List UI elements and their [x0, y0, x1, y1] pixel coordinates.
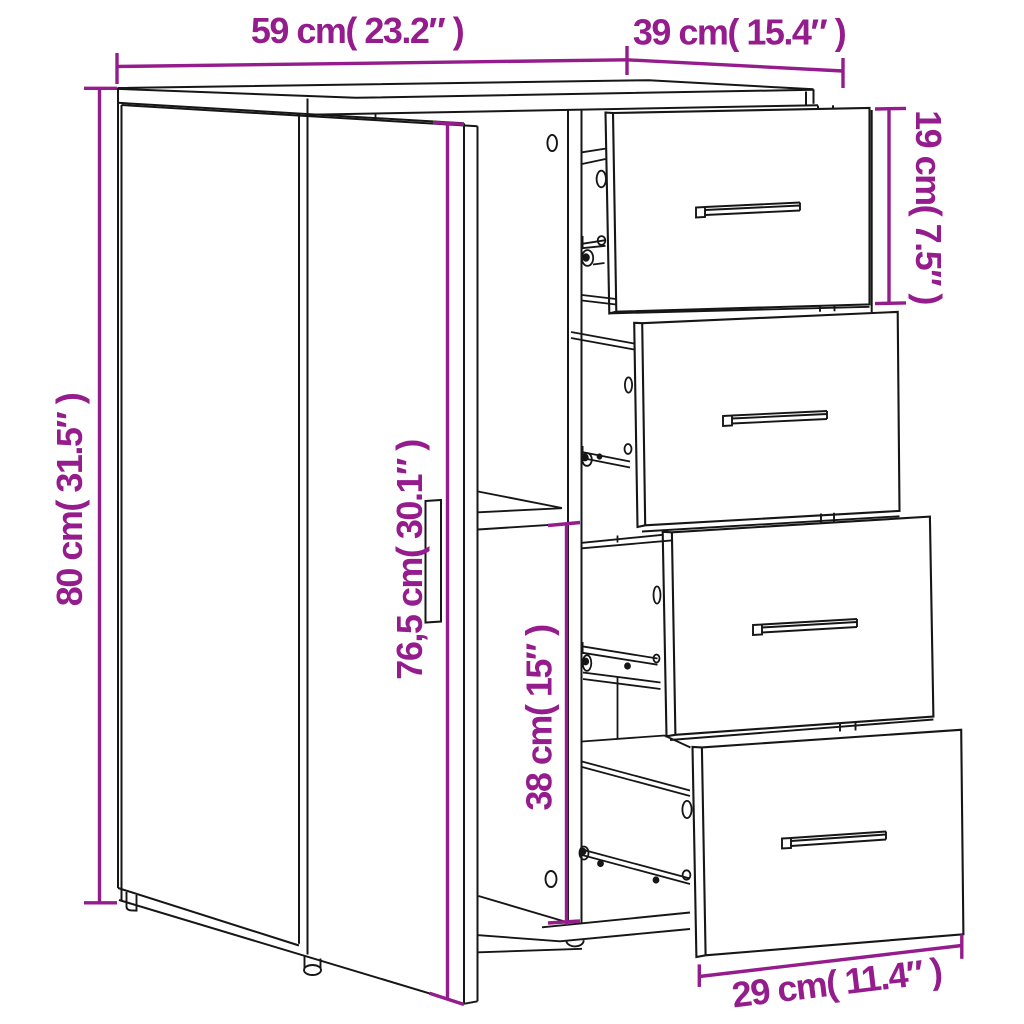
svg-text:19 cm( 7.5″ ): 19 cm( 7.5″ ) — [908, 110, 949, 304]
svg-text:38 cm( 15″ ): 38 cm( 15″ ) — [519, 625, 560, 811]
svg-text:39 cm( 15.4″ ): 39 cm( 15.4″ ) — [633, 12, 846, 53]
svg-text:80 cm( 31.5″ ): 80 cm( 31.5″ ) — [49, 393, 90, 606]
svg-text:76,5 cm( 30.1″ ): 76,5 cm( 30.1″ ) — [389, 440, 430, 680]
svg-text:59 cm( 23.2″ ): 59 cm( 23.2″ ) — [251, 10, 464, 51]
